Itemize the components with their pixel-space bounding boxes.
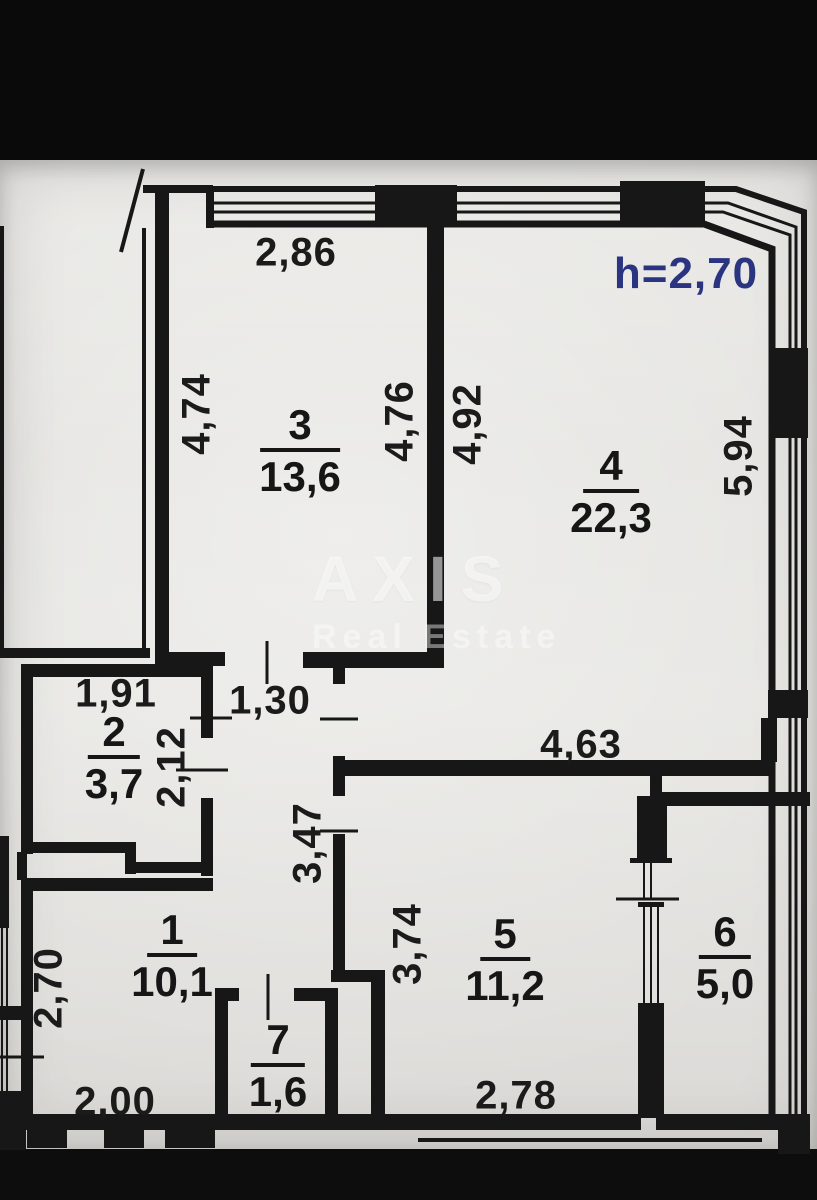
room-number: 7	[266, 1019, 289, 1061]
dim-room4-left-height: 4,92	[446, 383, 491, 465]
dim-hall-height: 3,74	[386, 903, 431, 985]
room-area: 22,3	[570, 497, 652, 539]
floorplan-walls	[0, 0, 817, 1200]
room-number: 5	[493, 913, 516, 955]
dim-room2-right-height: 2,12	[150, 726, 195, 808]
room-label-1: 1 10,1	[131, 909, 213, 1003]
floorplan-photo: AXIS Real Estate h=2,70 2,86 4,74 4,76 4…	[0, 0, 817, 1200]
ceiling-height-note: h=2,70	[614, 249, 758, 299]
room-label-6: 6 5,0	[696, 911, 754, 1005]
room-label-7: 7 1,6	[249, 1019, 307, 1113]
room-label-rule	[260, 448, 340, 452]
dim-room3-right-height: 4,76	[378, 380, 423, 462]
room-number: 4	[599, 445, 622, 487]
dim-room3-top-width: 2,86	[255, 231, 337, 276]
dim-corridor-height: 3,47	[286, 802, 331, 884]
room-label-rule	[480, 957, 530, 961]
room-area: 1,6	[249, 1071, 307, 1113]
dim-room1-bottom-width: 2,00	[74, 1080, 156, 1125]
dim-room4-right-height: 5,94	[717, 415, 762, 497]
room-label-rule	[147, 953, 197, 957]
room-area: 3,7	[85, 763, 143, 805]
dim-room1-left-height: 2,70	[27, 947, 72, 1029]
room-label-rule	[583, 489, 639, 493]
dim-room5-bottom-width: 2,78	[475, 1074, 557, 1119]
room-label-rule	[88, 755, 140, 759]
room-label-3: 3 13,6	[259, 404, 341, 498]
room-area: 5,0	[696, 963, 754, 1005]
dim-corridor-width: 1,30	[229, 679, 311, 724]
room-label-rule	[251, 1063, 305, 1067]
room-area: 11,2	[465, 965, 544, 1007]
room-number: 1	[160, 909, 183, 951]
room-label-rule	[699, 955, 751, 959]
room-label-4: 4 22,3	[570, 445, 652, 539]
room-number: 2	[102, 711, 125, 753]
room-number: 3	[288, 404, 311, 446]
room-area: 10,1	[131, 961, 213, 1003]
room-label-5: 5 11,2	[465, 913, 544, 1007]
room-label-2: 2 3,7	[85, 711, 143, 805]
room-number: 6	[713, 911, 736, 953]
room-area: 13,6	[259, 456, 341, 498]
dim-room4-bottom-width: 4,63	[540, 723, 622, 768]
dim-room3-left-height: 4,74	[175, 373, 220, 455]
